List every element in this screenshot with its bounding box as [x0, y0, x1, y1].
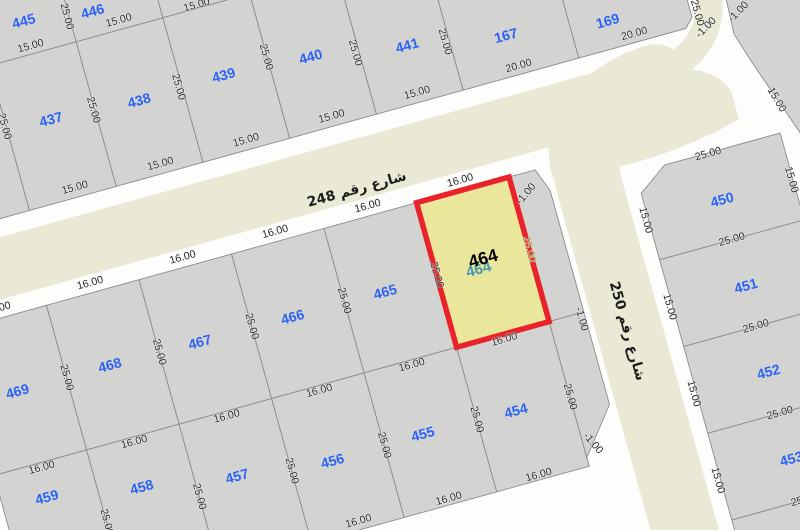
cadastral-map: 4454464374384394404411671694694684674664… [0, 0, 800, 530]
map-viewport: 4454464374384394404411671694694684674664… [0, 0, 800, 530]
map-world: 4454464374384394404411671694694684674664… [0, 0, 800, 530]
